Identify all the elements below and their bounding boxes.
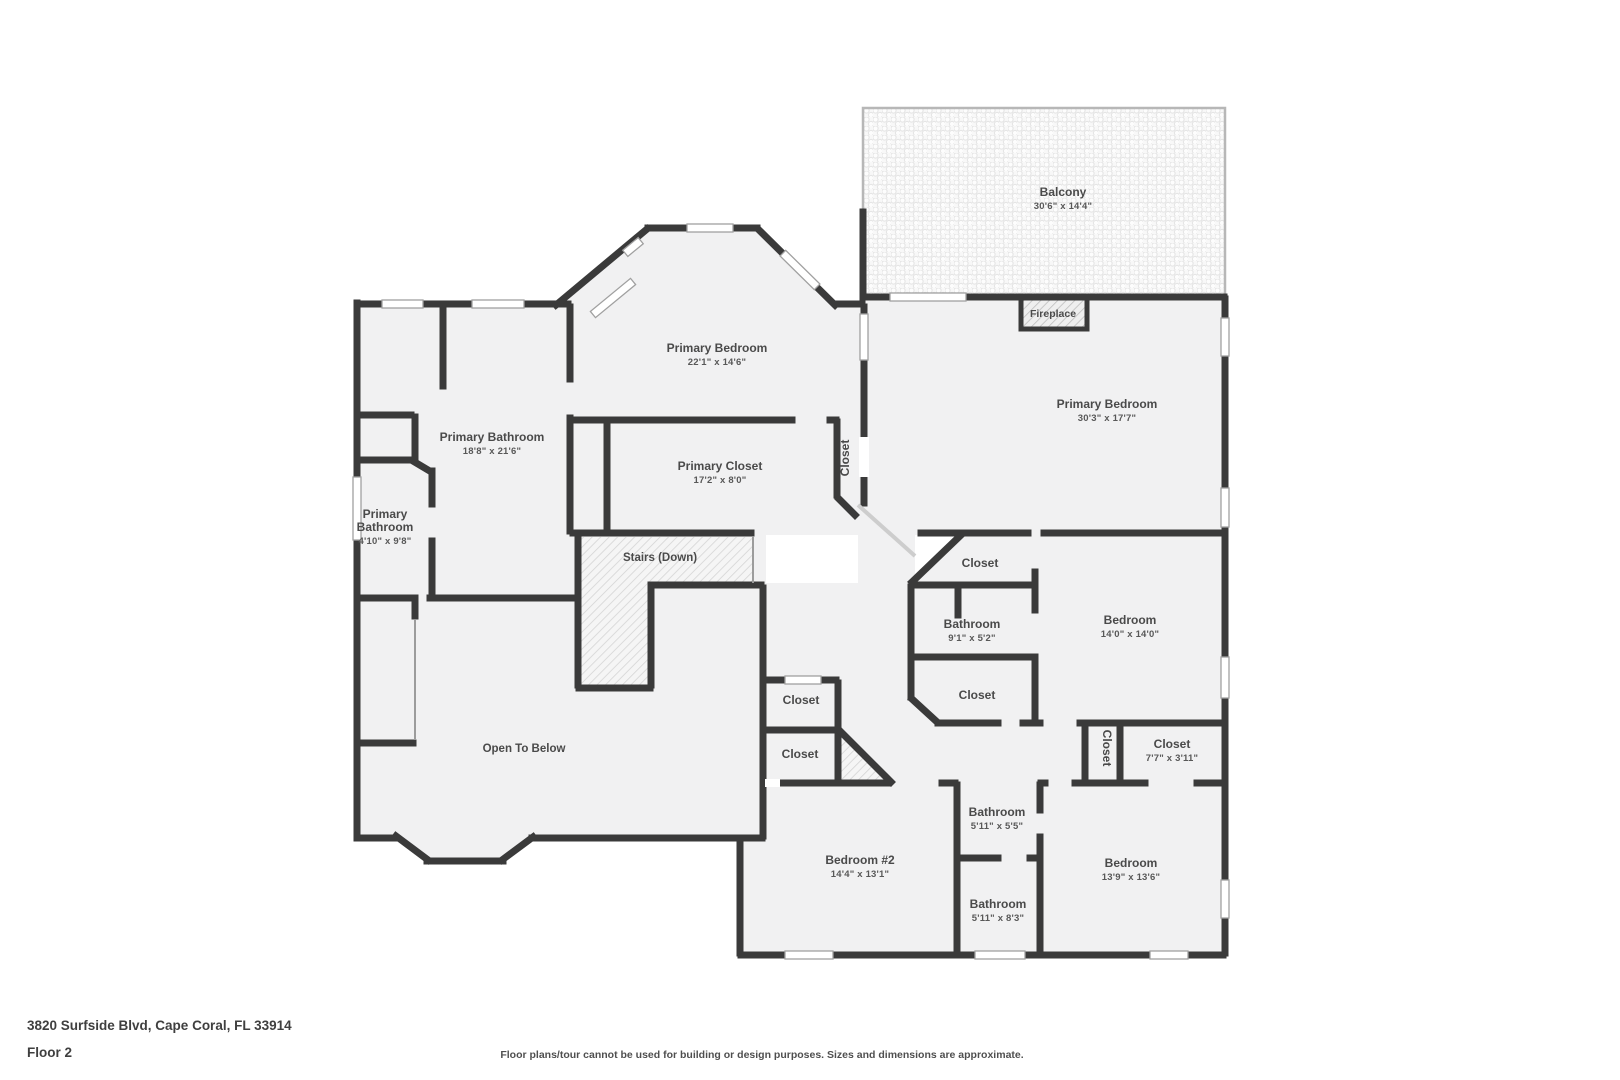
- room-dims-primary-bedroom-right: 30'3" x 17'7": [1078, 413, 1136, 424]
- room-label-bathroom-top: Bathroom: [969, 805, 1026, 819]
- room-label-primary-closet: Primary Closet: [678, 459, 763, 473]
- room-label-closet-corridor: Closet: [838, 440, 852, 477]
- room-dims-bathroom-bottom: 5'11" x 8'3": [972, 913, 1024, 924]
- room-label-primary-bedroom-right: Primary Bedroom: [1057, 397, 1158, 411]
- room-label-closet-77: Closet: [1154, 737, 1191, 751]
- room-fills: [357, 227, 1227, 958]
- room-label-primary-bathroom-small: Primary: [363, 507, 408, 521]
- room-dims-bathroom-mid: 9'1" x 5'2": [948, 633, 995, 644]
- room-label-open-to-below: Open To Below: [483, 743, 566, 755]
- room-label-closet-vertical-2: Closet: [1100, 730, 1114, 767]
- room-label-primary-bedroom-top: Primary Bedroom: [667, 341, 768, 355]
- room-dims-primary-closet: 17'2" x 8'0": [694, 475, 747, 486]
- room-dims-primary-bathroom-small: 4'10" x 9'8": [359, 536, 412, 547]
- room-label-stairs-down: Stairs (Down): [623, 552, 697, 564]
- room-dims-balcony: 30'6" x 14'4": [1034, 201, 1092, 212]
- address-label: 3820 Surfside Blvd, Cape Coral, FL 33914: [27, 1018, 292, 1033]
- room-label-closet-hall-2: Closet: [782, 747, 819, 761]
- room-label-bedroom-right: Bedroom: [1105, 856, 1158, 870]
- room-label-fireplace: Fireplace: [1030, 308, 1076, 320]
- room-label-bathroom-bottom: Bathroom: [970, 897, 1027, 911]
- disclaimer-label: Floor plans/tour cannot be used for buil…: [0, 1049, 1524, 1061]
- room-label-balcony: Balcony: [1040, 185, 1087, 199]
- room-dims-bedroom-right: 13'9" x 13'6": [1102, 872, 1160, 883]
- room-label-bedroom-mid: Bedroom: [1104, 613, 1157, 627]
- room-label-bathroom-mid: Bathroom: [944, 617, 1001, 631]
- floor-plan-page: Balcony30'6" x 14'4"FireplacePrimary Bed…: [0, 0, 1620, 1080]
- floor-plan-svg: Balcony30'6" x 14'4"FireplacePrimary Bed…: [0, 0, 1620, 1080]
- room-dims-primary-bedroom-top: 22'1" x 14'6": [688, 357, 746, 368]
- room-dims-bathroom-top: 5'11" x 5'5": [971, 821, 1023, 832]
- room-label-bedroom-2: Bedroom #2: [825, 853, 895, 867]
- room-label-closet-hall-1: Closet: [783, 693, 820, 707]
- room-label-closet-cluster-bottom: Closet: [959, 688, 996, 702]
- room-dims-primary-bathroom: 18'8" x 21'6": [463, 446, 521, 457]
- room-dims-closet-77: 7'7" x 3'11": [1146, 753, 1198, 764]
- room-label-primary-bathroom: Primary Bathroom: [440, 430, 545, 444]
- room-label-primary-bathroom-small-2: Bathroom: [357, 520, 414, 534]
- room-dims-bedroom-2: 14'4" x 13'1": [831, 869, 889, 880]
- room-label-closet-cluster-top: Closet: [962, 556, 999, 570]
- room-dims-bedroom-mid: 14'0" x 14'0": [1101, 629, 1159, 640]
